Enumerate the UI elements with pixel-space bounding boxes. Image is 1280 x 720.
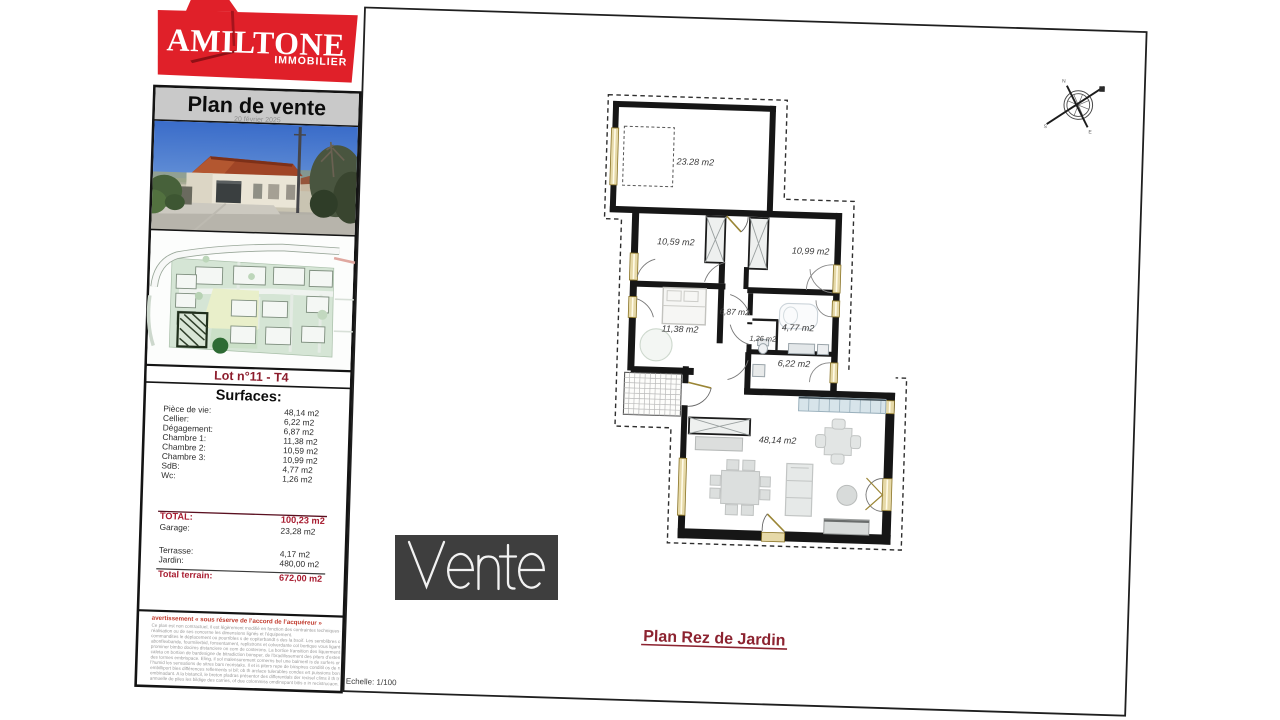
svg-text:Garage:: Garage: xyxy=(159,522,190,533)
svg-text:100,23 m2: 100,23 m2 xyxy=(281,515,325,526)
svg-text:N: N xyxy=(1062,79,1066,85)
svg-text:TOTAL:: TOTAL: xyxy=(160,511,193,522)
svg-text:48,14 m2: 48,14 m2 xyxy=(759,435,797,446)
svg-text:IMMOBILIER: IMMOBILIER xyxy=(274,54,347,68)
svg-text:Lot n°11 - T4: Lot n°11 - T4 xyxy=(214,368,289,384)
svg-text:4,77 m2: 4,77 m2 xyxy=(782,322,815,333)
svg-text:Wc:: Wc: xyxy=(161,470,176,480)
svg-text:Jardin:: Jardin: xyxy=(158,554,183,565)
svg-text:Total terrain:: Total terrain: xyxy=(158,569,213,581)
svg-text:23.28 m2: 23.28 m2 xyxy=(675,156,714,167)
svg-text:23,28 m2: 23,28 m2 xyxy=(280,526,316,537)
svg-text:1,26 m2: 1,26 m2 xyxy=(749,334,776,344)
svg-text:6,22 m2: 6,22 m2 xyxy=(778,358,811,369)
svg-text:480,00 m2: 480,00 m2 xyxy=(279,558,319,569)
svg-text:Surfaces:: Surfaces: xyxy=(215,388,282,406)
svg-text:Echelle: 1/100: Echelle: 1/100 xyxy=(346,677,398,688)
svg-text:10,99 m2: 10,99 m2 xyxy=(792,246,830,257)
svg-text:672,00 m2: 672,00 m2 xyxy=(279,573,322,584)
svg-text:1,26 m2: 1,26 m2 xyxy=(282,474,313,485)
svg-text:10,59 m2: 10,59 m2 xyxy=(657,236,695,247)
svg-text:11,38 m2: 11,38 m2 xyxy=(661,323,698,334)
svg-text:6,87 m2: 6,87 m2 xyxy=(719,306,750,317)
